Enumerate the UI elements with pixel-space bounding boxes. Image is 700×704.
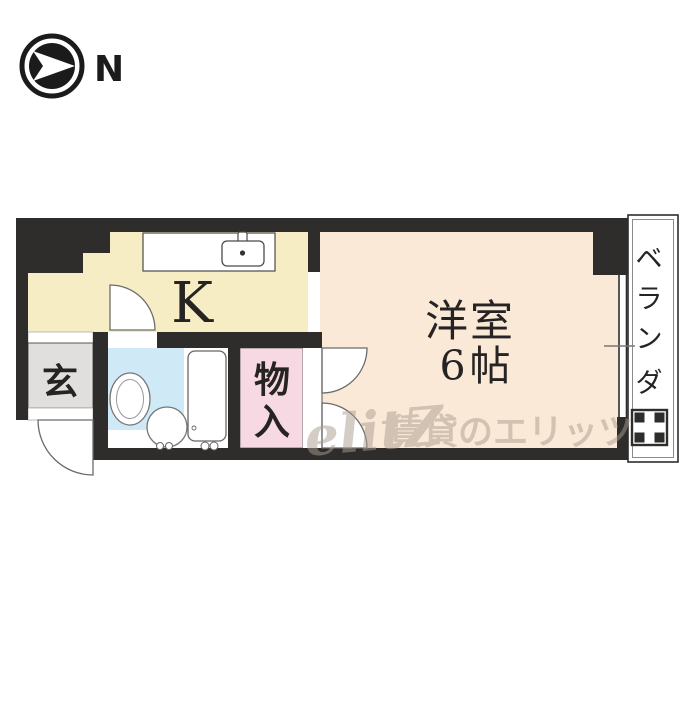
entrance-step-lower <box>28 408 93 420</box>
floorplan-page: N <box>0 0 700 700</box>
veranda-label-char4: ダ <box>636 368 663 399</box>
kitchen-counter <box>143 232 275 271</box>
sink-drain-dot <box>240 250 245 255</box>
washer-pan-corner-br <box>655 433 665 443</box>
watermark-text: 賃貸のエリッツ <box>387 413 633 453</box>
wall-kitchen-room <box>308 218 320 272</box>
bathtub-icon <box>188 351 226 441</box>
compass: N <box>22 36 124 96</box>
washbasin-faucet-2 <box>166 443 173 450</box>
toilet-seat <box>117 380 144 419</box>
storage-label-char1: 物 <box>254 359 290 401</box>
washbasin-icon <box>147 407 187 447</box>
entrance-label: 玄 <box>42 361 78 403</box>
washer-pan-corner-tr <box>655 413 665 423</box>
veranda-label-char3: ン <box>636 324 663 355</box>
bathtub-faucet-2 <box>210 442 218 450</box>
veranda-label-char1: ベ <box>636 244 663 275</box>
wall-ne-pillar <box>593 218 628 275</box>
washbasin-faucet-1 <box>157 443 164 450</box>
washer-pan-corner-tl <box>635 413 645 423</box>
washer-pan-corner-bl <box>635 433 645 443</box>
entrance-step-upper <box>28 332 93 343</box>
veranda-label-char2: ラ <box>636 284 663 315</box>
kitchen-label: K <box>171 271 214 336</box>
western-room-label: 洋室 <box>425 297 515 347</box>
floorplan-drawing: N <box>0 0 700 700</box>
wall-bathroom-right <box>228 332 240 460</box>
western-room-size-label: 6帖 <box>439 342 514 390</box>
washer-pan-icon <box>632 410 667 445</box>
wall-west <box>16 218 28 420</box>
kitchen-room-opening <box>308 272 320 332</box>
wall-bathroom-left <box>93 332 108 460</box>
bathtub-faucet-1 <box>201 442 209 450</box>
north-label: N <box>94 49 124 90</box>
storage-label-char2: 入 <box>254 401 290 443</box>
entrance-door-swing <box>38 420 93 475</box>
